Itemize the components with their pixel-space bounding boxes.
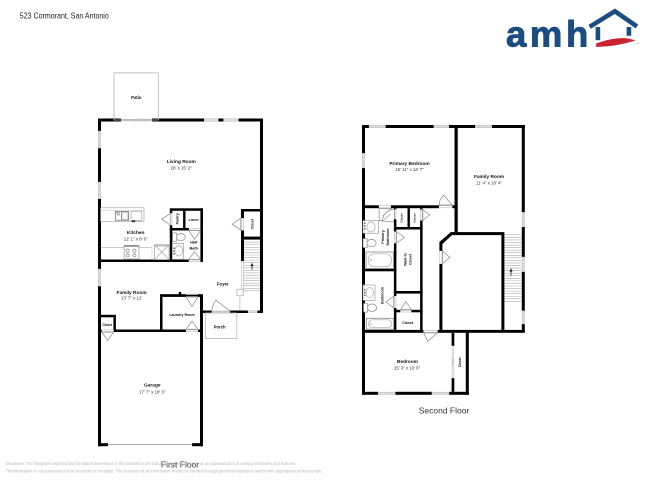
svg-text:Closet: Closet: [400, 213, 404, 222]
svg-text:11' 4" x 18' 4": 11' 4" x 18' 4": [476, 180, 502, 185]
svg-text:Half: Half: [190, 241, 198, 245]
svg-text:17' 7" x 18' 5": 17' 7" x 18' 5": [139, 389, 166, 394]
svg-text:Patio: Patio: [131, 95, 142, 100]
svg-text:15' 3" x 10' 6": 15' 3" x 10' 6": [394, 365, 421, 370]
svg-text:12' 1" x 8' 6": 12' 1" x 8' 6": [124, 236, 148, 241]
svg-text:Bath: Bath: [189, 246, 198, 250]
svg-text:Kitchen: Kitchen: [127, 230, 145, 236]
svg-text:Closet: Closet: [408, 253, 412, 265]
svg-text:Closet: Closet: [102, 323, 113, 327]
svg-text:Porch: Porch: [214, 324, 226, 329]
svg-text:Primary: Primary: [381, 230, 385, 243]
svg-text:Closet: Closet: [250, 218, 254, 229]
svg-text:28' x 15' 2": 28' x 15' 2": [171, 166, 193, 171]
svg-text:Bathroom: Bathroom: [381, 287, 385, 304]
svg-text:Living Room: Living Room: [167, 159, 196, 165]
svg-text:™: ™: [636, 42, 639, 46]
svg-text:Pantry: Pantry: [175, 213, 179, 224]
svg-text:Walk-In: Walk-In: [403, 253, 407, 266]
svg-text:523 Cormorant, San Antonio: 523 Cormorant, San Antonio: [20, 11, 109, 21]
svg-text:This illustration is not guara: This illustration is not guaranteed to b…: [6, 469, 323, 474]
svg-text:Laundry Room: Laundry Room: [169, 313, 194, 317]
svg-text:amh: amh: [506, 14, 592, 55]
svg-text:Primary Bedroom: Primary Bedroom: [389, 161, 429, 167]
svg-text:Second Floor: Second Floor: [419, 405, 470, 415]
svg-text:Disclaimer: The floorplans dep: Disclaimer: The floorplans depicted and …: [6, 461, 297, 466]
svg-text:Closet: Closet: [413, 213, 417, 222]
svg-text:Closet: Closet: [458, 356, 462, 367]
svg-text:Foyer: Foyer: [217, 281, 229, 286]
svg-text:Closet: Closet: [402, 321, 414, 325]
svg-text:15' 11" x 13' 7": 15' 11" x 13' 7": [395, 167, 424, 172]
svg-text:Family Room: Family Room: [474, 174, 504, 180]
svg-text:Bathroom: Bathroom: [386, 229, 390, 246]
svg-text:Linen: Linen: [189, 218, 200, 222]
svg-text:13' 7" x 12': 13' 7" x 12': [121, 296, 142, 301]
svg-text:Garage: Garage: [144, 383, 161, 389]
svg-text:Bedroom: Bedroom: [397, 359, 418, 365]
